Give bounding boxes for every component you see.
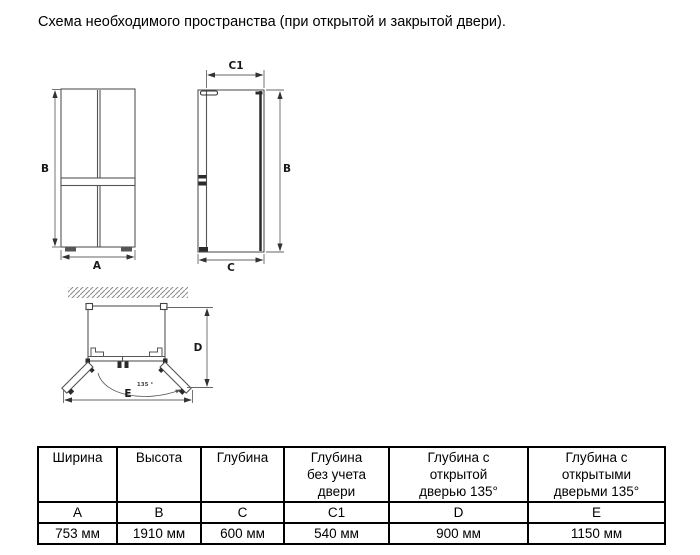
value-width: 753 мм — [38, 523, 117, 544]
back-hinge-left — [86, 304, 93, 310]
top-view: 135 ° D E — [62, 287, 213, 403]
wall-hatch — [68, 287, 188, 298]
open-door-right — [157, 362, 191, 396]
top-body — [88, 306, 165, 361]
letter-a: A — [38, 502, 117, 523]
side-foot — [199, 247, 208, 252]
front-foot-right — [121, 247, 132, 252]
side-mid-handle-upper — [199, 175, 207, 179]
letter-c: C — [201, 502, 284, 523]
center-stud-left — [118, 362, 122, 369]
col-header-depth-door-open: Глубина с открытой дверью 135° — [389, 447, 528, 502]
back-hinge-right — [161, 304, 168, 310]
side-mid-handle-lower — [199, 182, 207, 186]
value-depth-door-open: 900 мм — [389, 523, 528, 544]
col-header-depth-doors-open: Глубина с открытыми дверьми 135° — [528, 447, 665, 502]
col-header-depth: Глубина — [201, 447, 284, 502]
value-height: 1910 мм — [117, 523, 201, 544]
value-depth-no-door: 540 мм — [284, 523, 389, 544]
col-header-width: Ширина — [38, 447, 117, 502]
front-divider — [61, 178, 135, 186]
clearance-diagram: B A — [0, 55, 700, 430]
center-stud-right — [125, 362, 129, 369]
letter-b: B — [117, 502, 201, 523]
door-panel — [62, 362, 93, 393]
label-depth-no-door-c1: C1 — [228, 60, 243, 72]
label-angle: 135 ° — [137, 382, 153, 388]
col-header-height: Высота — [117, 447, 201, 502]
value-depth-doors-open: 1150 мм — [528, 523, 665, 544]
letter-e: E — [528, 502, 665, 523]
manual-page: Схема необходимого пространства (при отк… — [0, 0, 700, 555]
label-door-open-d: D — [194, 342, 203, 354]
letter-row: A B C C1 D E — [38, 502, 665, 523]
label-depth-c: C — [227, 262, 235, 274]
side-body — [198, 90, 264, 252]
front-view: B A — [41, 89, 135, 272]
dimensions-table: Ширина Высота Глубина Глубина без учета … — [37, 446, 666, 545]
label-width-a: A — [93, 260, 102, 272]
open-door-left — [62, 362, 96, 396]
header-row: Ширина Высота Глубина Глубина без учета … — [38, 447, 665, 502]
value-row: 753 мм 1910 мм 600 мм 540 мм 900 мм 1150… — [38, 523, 665, 544]
value-depth: 600 мм — [201, 523, 284, 544]
label-height-b-side: B — [283, 163, 291, 175]
page-title: Схема необходимого пространства (при отк… — [38, 13, 506, 31]
label-height-b: B — [41, 163, 49, 175]
side-top-back-cap — [256, 92, 263, 95]
side-view: C1 B C — [198, 60, 291, 274]
front-foot-left — [65, 247, 76, 252]
door-panel — [160, 362, 191, 393]
letter-d: D — [389, 502, 528, 523]
label-doors-open-e: E — [124, 388, 131, 400]
letter-c1: C1 — [284, 502, 389, 523]
col-header-depth-no-door: Глубина без учета двери — [284, 447, 389, 502]
